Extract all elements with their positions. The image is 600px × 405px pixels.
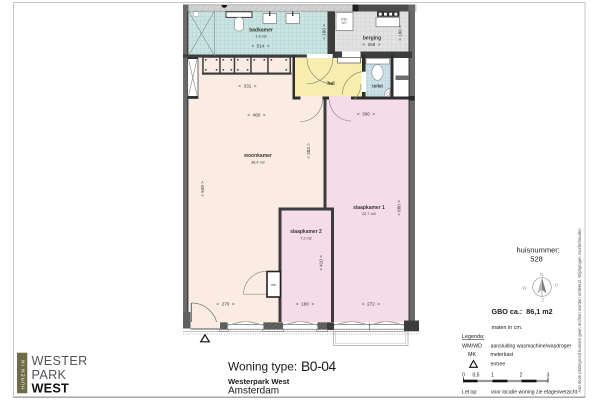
svg-text:0,5: 0,5 [473,373,480,379]
svg-text:< 269 >: < 269 > [362,42,380,47]
svg-text:WESTER: WESTER [32,354,88,368]
svg-text:7,9 m2: 7,9 m2 [255,35,267,39]
svg-text:< 410 >: < 410 > [318,255,323,271]
svg-text:HUREN IN: HUREN IN [21,359,26,389]
svg-text:Aan deze plattegrond kunnen ge: Aan deze plattegrond kunnen geen rechten… [577,228,582,393]
svg-text:maten in cm.: maten in cm. [492,325,523,331]
svg-text:1: 1 [491,373,494,379]
svg-text:badkamer: badkamer [249,28,273,34]
svg-text:huisnummer:: huisnummer: [517,246,560,255]
svg-text:2: 2 [520,373,523,379]
svg-text:< 514 >: < 514 > [251,43,269,48]
svg-text:PARK: PARK [32,368,67,382]
svg-text:22,7 m2: 22,7 m2 [362,212,376,216]
svg-text:N: N [540,272,543,277]
svg-text:B0-04: B0-04 [301,359,337,374]
svg-text:aansluiting wasmachine/wasdrog: aansluiting wasmachine/wasdroger [491,344,572,350]
svg-text:voor locatie woning zie etageo: voor locatie woning zie etageoverzicht. [491,390,579,396]
svg-text:O: O [555,283,559,288]
svg-text:hal: hal [327,81,335,87]
svg-text:< 460 >: < 460 > [247,113,265,118]
svg-text:Woning type:: Woning type: [228,360,297,374]
svg-text:< 680 >: < 680 > [397,200,402,216]
svg-text:< 270 >: < 270 > [216,302,234,307]
svg-text:< 300 >: < 300 > [357,112,375,117]
svg-text:< 331 >: < 331 > [238,84,256,89]
svg-text:Let op:: Let op: [462,390,478,396]
svg-text:38,4 m2: 38,4 m2 [251,161,265,165]
svg-text:7,2 m2: 7,2 m2 [300,237,312,241]
svg-text:< 272 >: < 272 > [362,302,380,307]
svg-text:528: 528 [530,255,543,264]
svg-text:slaapkamer 2: slaapkamer 2 [290,229,322,235]
svg-text:Legenda:: Legenda: [462,334,484,340]
svg-text:slaapkamer 1: slaapkamer 1 [353,205,385,211]
svg-text:< 180 >: < 180 > [398,25,403,41]
svg-text:< 180 >: < 180 > [322,24,327,40]
svg-text:WM/WD: WM/WD [462,344,482,350]
svg-text:< 949 >: < 949 > [200,181,205,197]
svg-text:< 383 >: < 383 > [306,143,311,159]
svg-text:berging: berging [363,36,381,42]
svg-text:WEST: WEST [32,382,69,396]
svg-text:entree: entree [491,362,506,368]
svg-text:WD: WD [341,21,347,25]
svg-text:GBO ca.: 86,1 m2: GBO ca.: 86,1 m2 [492,307,553,316]
svg-text:meterkast: meterkast [491,352,514,358]
svg-text:woonkamer: woonkamer [243,153,272,159]
svg-text:< 180 >: < 180 > [296,302,314,307]
svg-text:toilet: toilet [372,84,383,89]
svg-text:MK: MK [468,352,476,358]
svg-text:Amsterdam: Amsterdam [228,386,279,397]
svg-text:mk: mk [271,283,276,287]
svg-text:Z: Z [542,298,545,303]
